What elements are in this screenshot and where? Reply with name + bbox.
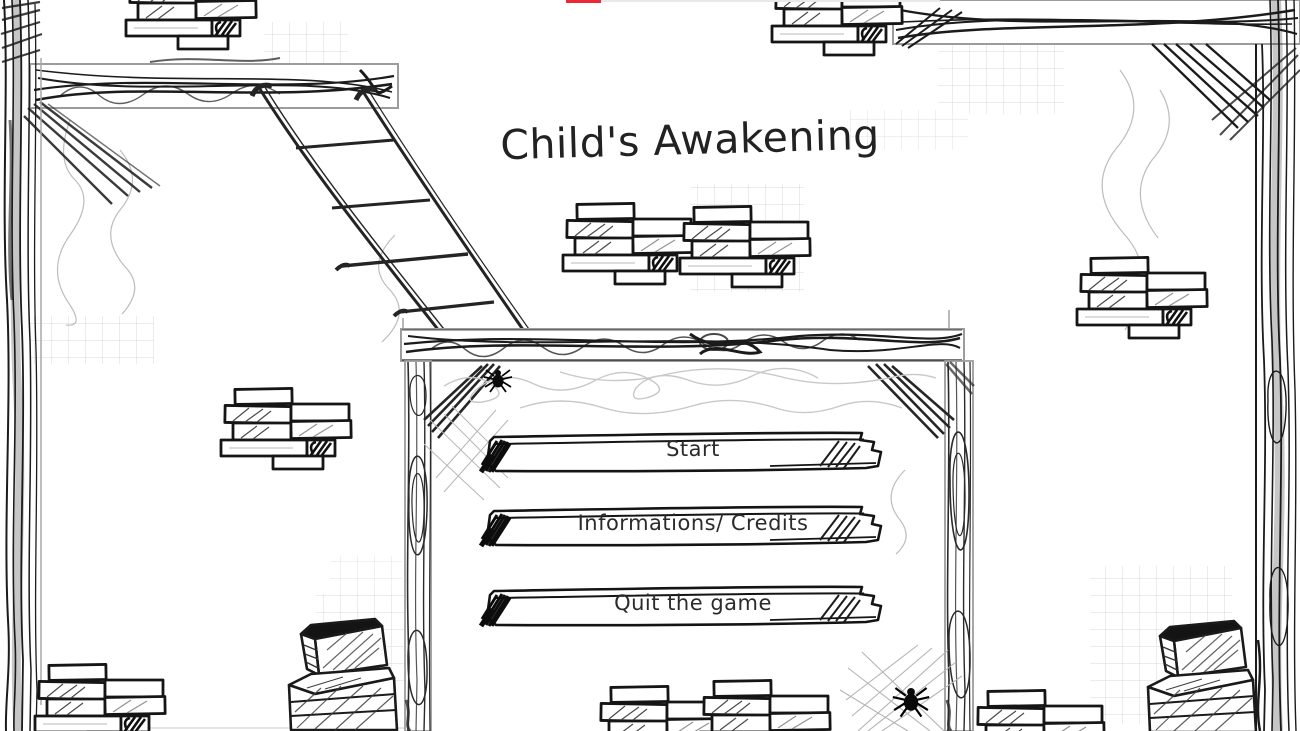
spider-web — [840, 645, 962, 731]
top-progress-track — [601, 0, 940, 2]
brick-cluster — [563, 203, 693, 284]
brick-cluster — [700, 680, 830, 731]
brick-cluster — [974, 690, 1104, 731]
quit-game-button-label: Quit the game — [478, 591, 908, 615]
informations-credits-button[interactable]: Informations/ Credits — [478, 501, 908, 549]
informations-credits-button-label: Informations/ Credits — [478, 511, 908, 535]
brick-cluster — [221, 388, 351, 469]
start-button-label: Start — [478, 437, 908, 461]
brick-cluster — [126, 0, 256, 49]
top-left-beam — [24, 58, 398, 204]
start-button[interactable]: Start — [478, 427, 908, 475]
smoke-scribbles — [444, 368, 936, 413]
quit-game-button[interactable]: Quit the game — [478, 581, 908, 629]
top-progress-accent — [566, 0, 601, 3]
brick-cluster — [772, 0, 902, 55]
game-menu-scene: Child's Awakening Start Informations/ Cr… — [0, 0, 1300, 731]
crate-stack — [289, 619, 397, 730]
plank-art — [478, 501, 908, 549]
brick-cluster — [1077, 257, 1207, 338]
plank-art — [478, 427, 908, 475]
plank-art — [478, 581, 908, 629]
brick-cluster — [35, 664, 165, 731]
left-border-sketch — [1, 0, 42, 731]
